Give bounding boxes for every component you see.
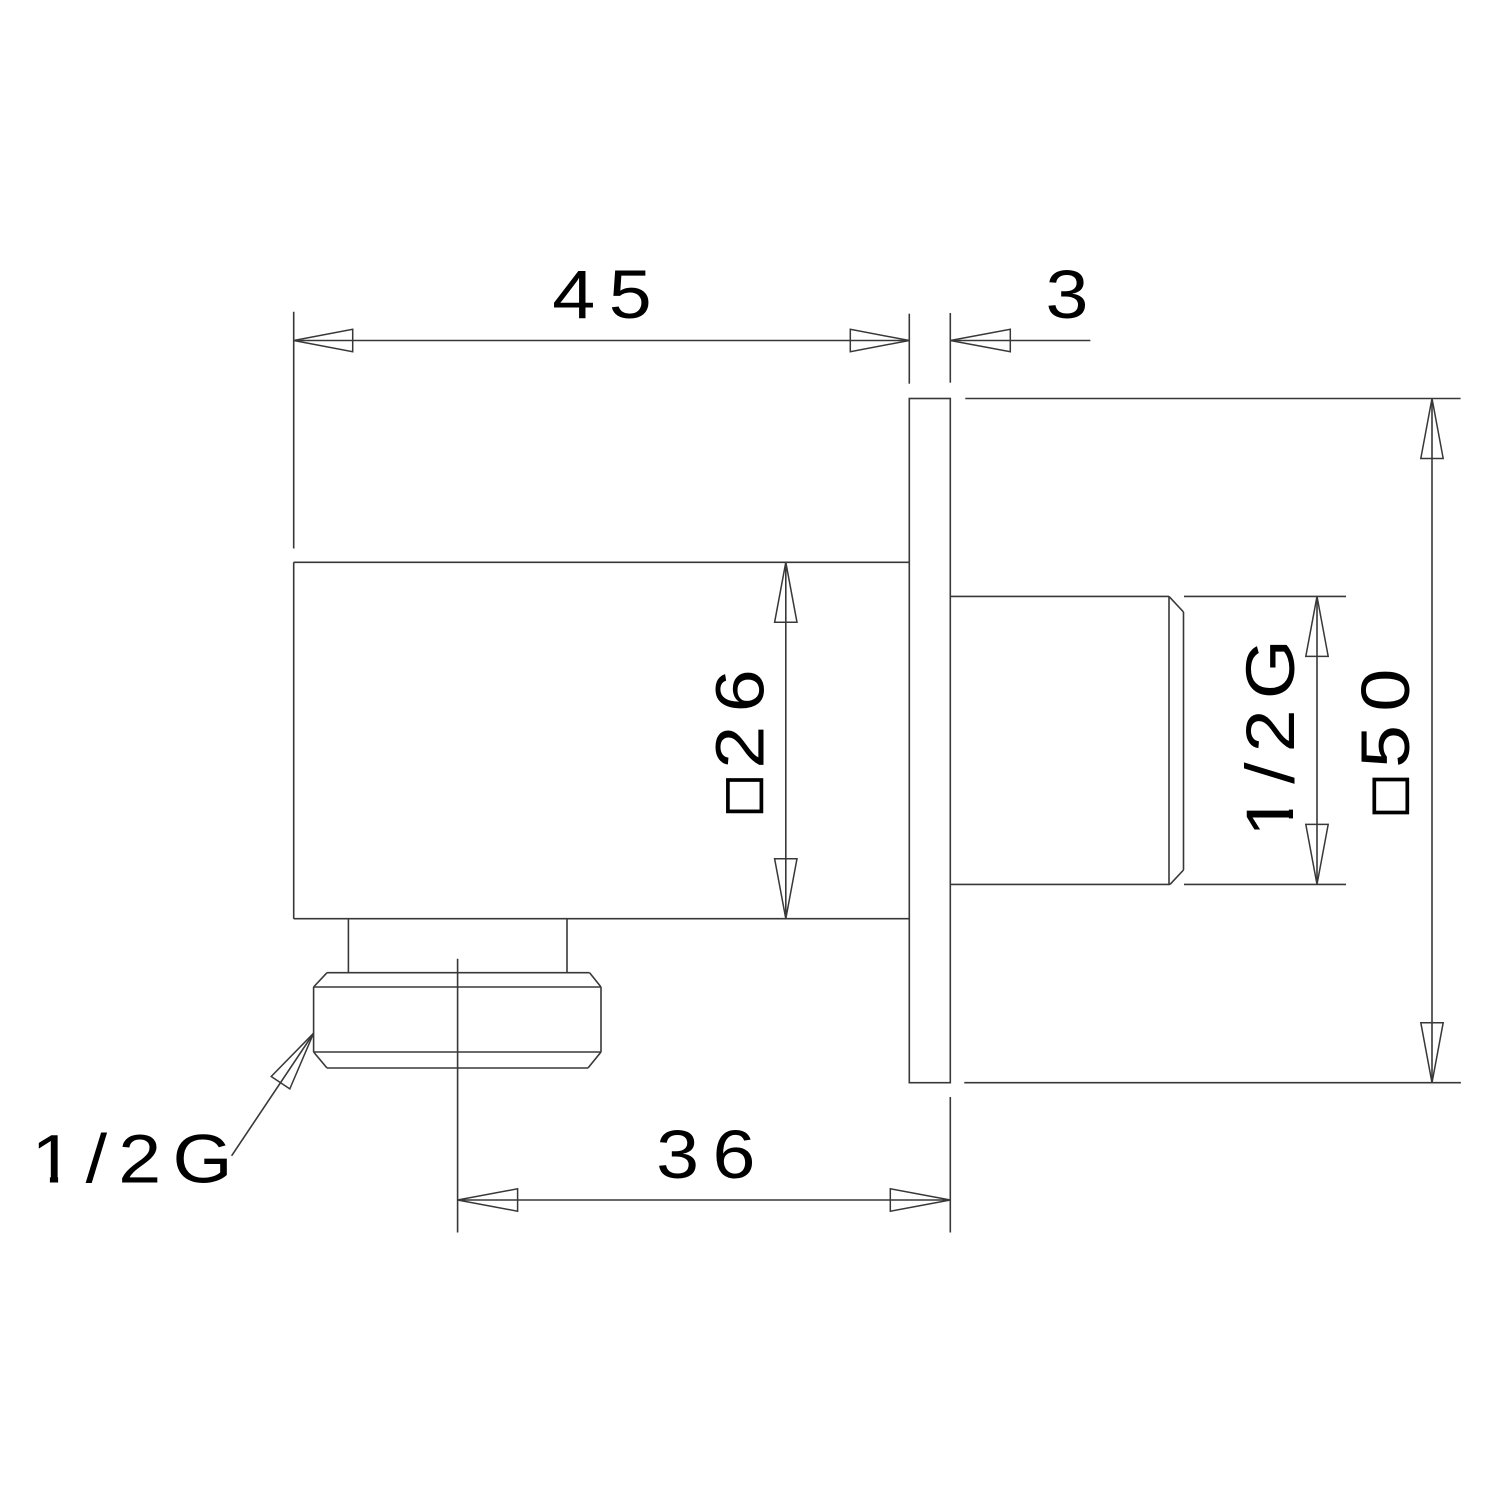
svg-text:45: 45: [552, 256, 665, 333]
svg-text:50: 50: [1347, 655, 1424, 768]
svg-text:26: 26: [701, 656, 778, 769]
svg-text:3: 3: [1045, 256, 1101, 333]
svg-text:36: 36: [656, 1116, 769, 1193]
